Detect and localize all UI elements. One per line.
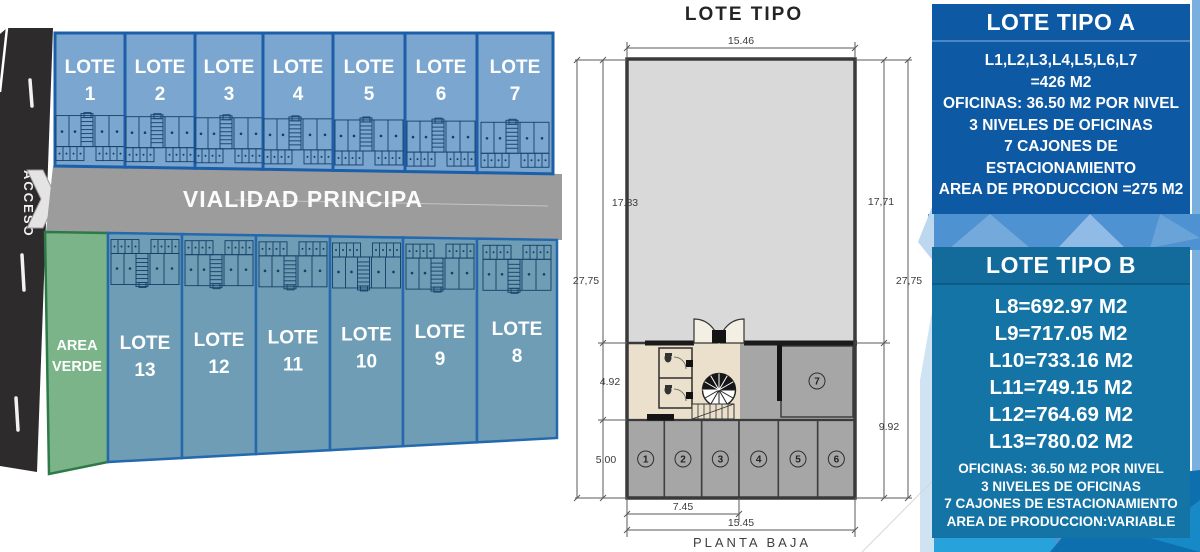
panel-b-body: L8=692.97 M2 L9=717.05 M2 L10=733.16 M2 … bbox=[932, 285, 1190, 530]
panel-a-line: 7 CAJONES DE bbox=[932, 136, 1190, 158]
panel-a-line: ESTACIONAMIENTO bbox=[932, 158, 1190, 180]
dim-left-total: 27,75 bbox=[573, 275, 599, 287]
lot-number: 10 bbox=[356, 352, 377, 373]
lot-label: LOTE bbox=[204, 57, 255, 78]
site-plan: ACCESO VIALIDAD PRINCIPA AREA VERDE LOTE… bbox=[0, 28, 562, 474]
lot-number: 2 bbox=[155, 84, 166, 105]
main-road-label: VIALIDAD PRINCIPA bbox=[183, 186, 423, 212]
lot-label: LOTE bbox=[416, 57, 467, 78]
lot-label: LOTE bbox=[341, 325, 392, 346]
lot-number: 5 bbox=[364, 84, 375, 105]
lot-label: LOTE bbox=[268, 327, 319, 348]
panel-a-title: LOTE TIPO A bbox=[932, 4, 1190, 42]
panel-b-detail-line: 3 NIVELES DE OFICINAS bbox=[932, 478, 1190, 496]
lot-label: LOTE bbox=[194, 330, 245, 351]
parking-spot-number: 3 bbox=[718, 455, 724, 466]
dim-bottom-total: 15.45 bbox=[728, 517, 754, 529]
parking-stalls: 123456 bbox=[627, 420, 855, 498]
lot-number: 8 bbox=[512, 346, 523, 367]
panel-b-area-line: L9=717.05 M2 bbox=[932, 320, 1190, 347]
lot-label: LOTE bbox=[415, 322, 466, 343]
panel-b-detail-line: 7 CAJONES DE ESTACIONAMIENTO bbox=[932, 495, 1190, 513]
panel-b-detail-line: AREA DE PRODUCCION:VARIABLE bbox=[932, 513, 1190, 531]
dim-right-lower: 9.92 bbox=[879, 421, 900, 433]
lot-shape bbox=[477, 239, 557, 443]
panel-lote-tipo-b: LOTE TIPO B L8=692.97 M2 L9=717.05 M2 L1… bbox=[932, 247, 1190, 538]
lot-label: LOTE bbox=[490, 57, 541, 78]
lot-number: 3 bbox=[224, 84, 235, 105]
lot-label: LOTE bbox=[65, 57, 116, 78]
dim-left-parking: 5.00 bbox=[596, 454, 617, 466]
panel-b-detail-line: OFICINAS: 36.50 M2 POR NIVEL bbox=[932, 460, 1190, 478]
lot-number: 9 bbox=[435, 349, 446, 370]
parking-spot-number: 4 bbox=[756, 455, 762, 466]
plan-caption: PLANTA BAJA bbox=[693, 535, 811, 550]
lot-label: LOTE bbox=[120, 333, 171, 354]
parking-spot-7-number: 7 bbox=[814, 377, 820, 388]
panel-b-details: OFICINAS: 36.50 M2 POR NIVEL 3 NIVELES D… bbox=[932, 455, 1190, 530]
dim-left-office: 4.92 bbox=[600, 376, 621, 388]
slide: ACCESO VIALIDAD PRINCIPA AREA VERDE LOTE… bbox=[0, 0, 1200, 552]
lot-label: LOTE bbox=[273, 57, 324, 78]
lot-number: 7 bbox=[510, 84, 521, 105]
panel-a-line: =426 M2 bbox=[932, 72, 1190, 94]
panel-a-line: AREA DE PRODUCCION =275 M2 bbox=[932, 179, 1190, 201]
panel-lote-tipo-a: LOTE TIPO A L1,L2,L3,L4,L5,L6,L7 =426 M2… bbox=[932, 4, 1190, 214]
lot-label: LOTE bbox=[135, 57, 186, 78]
lot-number: 13 bbox=[134, 360, 155, 381]
panel-b-area-line: L10=733.16 M2 bbox=[932, 347, 1190, 374]
panel-b-area-line: L8=692.97 M2 bbox=[932, 293, 1190, 320]
lot-number: 12 bbox=[208, 357, 229, 378]
green-area-label-line2: VERDE bbox=[52, 359, 102, 375]
panel-a-body: L1,L2,L3,L4,L5,L6,L7 =426 M2 OFICINAS: 3… bbox=[932, 42, 1190, 201]
panel-b-area-line: L13=780.02 M2 bbox=[932, 428, 1190, 455]
panel-a-line: L1,L2,L3,L4,L5,L6,L7 bbox=[932, 50, 1190, 72]
dim-right-upper: 17,71 bbox=[868, 196, 894, 208]
panel-a-line: OFICINAS: 36.50 M2 POR NIVEL bbox=[932, 93, 1190, 115]
parking-spot-number: 5 bbox=[795, 455, 801, 466]
panel-b-area-line: L12=764.69 M2 bbox=[932, 401, 1190, 428]
lot-number: 4 bbox=[293, 84, 304, 105]
top-lots-row: LOTE1LOTE2LOTE3LOTE4LOTE5LOTE6LOTE7 bbox=[55, 33, 553, 174]
dim-top: 15.46 bbox=[728, 35, 754, 47]
production-area bbox=[627, 59, 855, 343]
plan-title: LOTE TIPO bbox=[685, 4, 803, 25]
bottom-lots-row: LOTE13LOTE12LOTE11LOTE10LOTE9LOTE8 bbox=[108, 233, 557, 462]
parking-spot-number: 1 bbox=[643, 455, 649, 466]
parking-spot-number: 6 bbox=[834, 455, 840, 466]
green-area-label-line1: AREA bbox=[56, 338, 98, 354]
lote-tipo-plan: LOTE TIPO 7 123456 bbox=[573, 4, 922, 550]
lot-label: LOTE bbox=[344, 57, 395, 78]
lot-number: 11 bbox=[283, 354, 304, 375]
dim-left-upper: 17.83 bbox=[612, 197, 638, 209]
panel-b-title: LOTE TIPO B bbox=[932, 247, 1190, 285]
parking-spot-number: 2 bbox=[680, 455, 686, 466]
dim-bottom-inner: 7.45 bbox=[673, 501, 694, 513]
lot-number: 6 bbox=[436, 84, 447, 105]
panel-a-line: 3 NIVELES DE OFICINAS bbox=[932, 115, 1190, 137]
lot-number: 1 bbox=[85, 84, 96, 105]
panel-b-area-line: L11=749.15 M2 bbox=[932, 374, 1190, 401]
dim-right-total: 27,75 bbox=[896, 275, 922, 287]
lot-label: LOTE bbox=[492, 319, 543, 340]
